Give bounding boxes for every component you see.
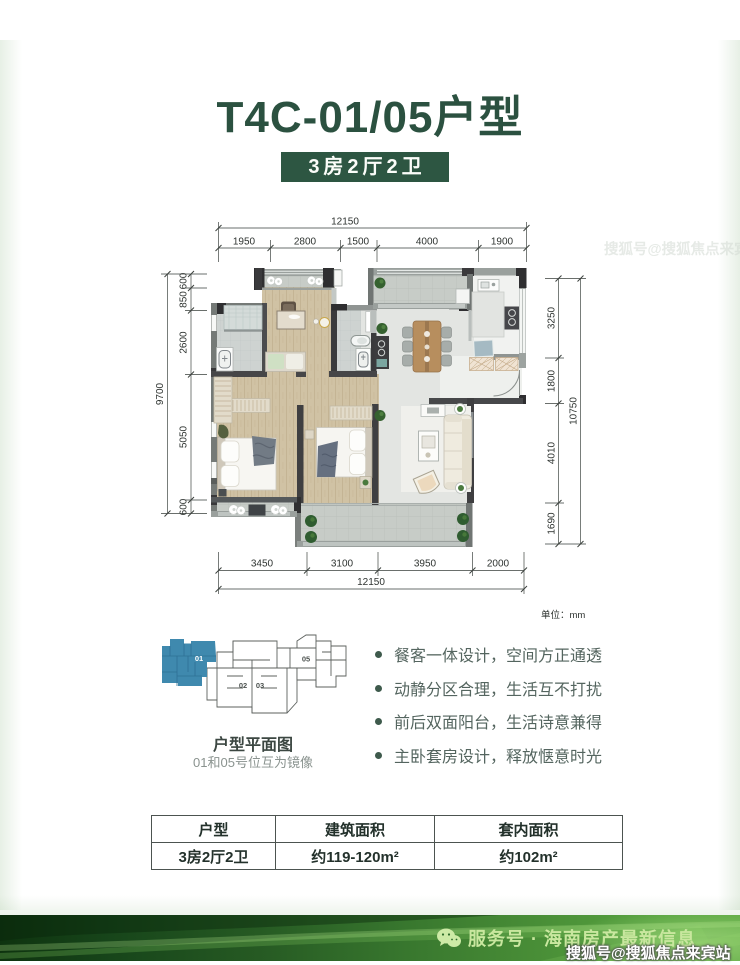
- svg-text:2600: 2600: [179, 331, 190, 354]
- svg-text:1950: 1950: [233, 237, 256, 248]
- svg-text:12150: 12150: [357, 577, 385, 588]
- svg-text:600: 600: [179, 272, 190, 289]
- svg-text:1900: 1900: [491, 237, 514, 248]
- svg-text:2800: 2800: [294, 237, 317, 248]
- svg-text:1800: 1800: [547, 369, 558, 392]
- svg-text:3450: 3450: [251, 559, 274, 570]
- svg-text:600: 600: [179, 498, 190, 515]
- svg-text:3950: 3950: [414, 559, 437, 570]
- svg-text:12150: 12150: [331, 217, 359, 228]
- svg-text:01: 01: [195, 654, 203, 663]
- svg-text:单位：mm: 单位：mm: [541, 609, 585, 621]
- svg-text:2000: 2000: [487, 559, 510, 570]
- svg-text:1690: 1690: [547, 512, 558, 535]
- svg-text:1500: 1500: [347, 237, 370, 248]
- svg-text:9700: 9700: [155, 382, 166, 405]
- svg-text:10750: 10750: [569, 397, 580, 425]
- svg-text:4010: 4010: [547, 441, 558, 464]
- svg-text:5050: 5050: [179, 425, 190, 448]
- svg-text:02: 02: [239, 681, 247, 690]
- svg-text:3100: 3100: [331, 559, 354, 570]
- svg-text:05: 05: [302, 655, 310, 664]
- svg-text:4000: 4000: [416, 237, 439, 248]
- svg-text:03: 03: [256, 681, 264, 690]
- svg-text:850: 850: [179, 291, 190, 308]
- svg-text:3250: 3250: [547, 306, 558, 329]
